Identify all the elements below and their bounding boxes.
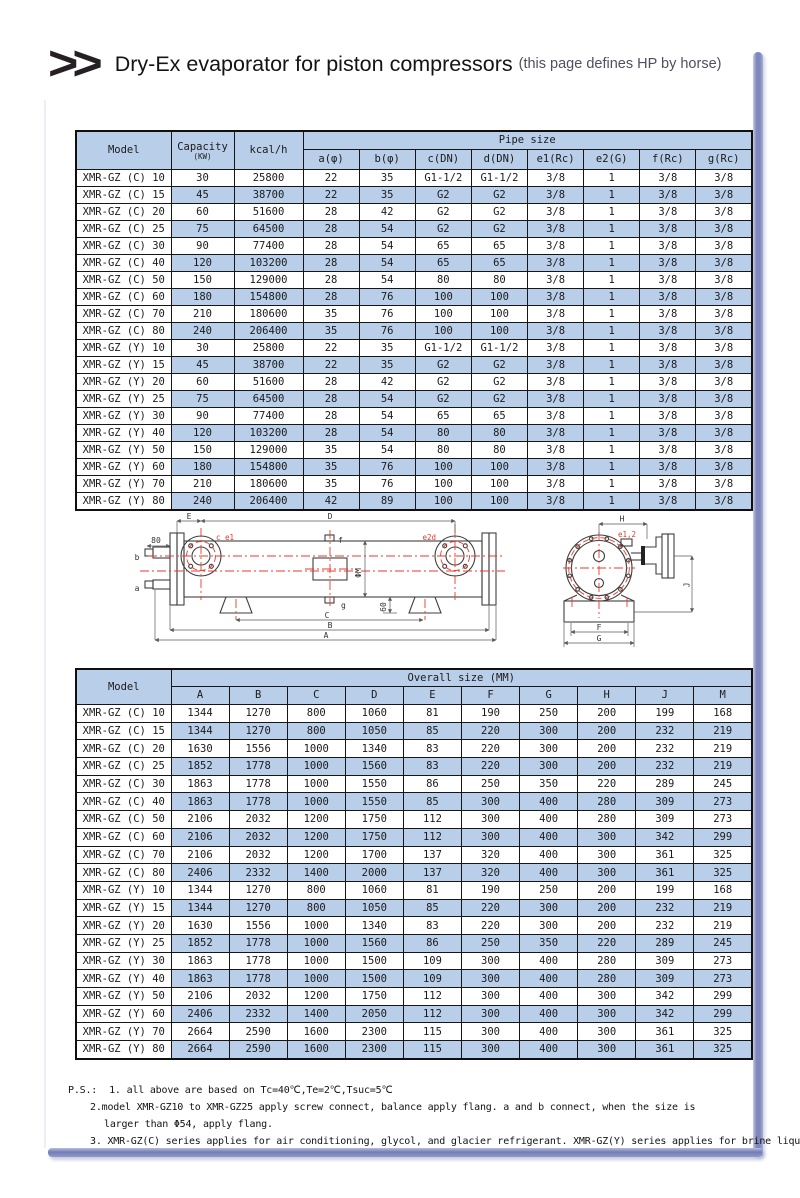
table-row: XMR-GZ (Y) 70266425901600230011530040030… — [76, 1023, 752, 1041]
value-cell: 3/8 — [640, 272, 696, 289]
page-border-right — [753, 52, 763, 1156]
value-cell: 1 — [584, 238, 640, 255]
value-cell: 1000 — [287, 775, 345, 793]
value-cell: 3/8 — [696, 476, 752, 493]
value-cell: 3/8 — [528, 408, 584, 425]
value-cell: 400 — [520, 1041, 578, 1059]
value-cell: 3/8 — [696, 272, 752, 289]
value-cell: 1500 — [345, 970, 403, 988]
table-row: XMR-GZ (Y) 30186317781000150010930040028… — [76, 952, 752, 970]
value-cell: 2106 — [171, 828, 229, 846]
value-cell: 3/8 — [528, 221, 584, 238]
value-cell: 342 — [636, 988, 694, 1006]
value-cell: 3/8 — [528, 493, 584, 511]
nozzle-label-e2d: e2d — [422, 533, 436, 542]
value-cell: 42 — [359, 374, 415, 391]
value-cell: 1400 — [287, 864, 345, 882]
value-cell: 2406 — [171, 1005, 229, 1023]
value-cell: 300 — [461, 1005, 519, 1023]
value-cell: 150 — [171, 442, 234, 459]
model-cell: XMR-GZ (C) 15 — [76, 722, 171, 740]
value-cell: 54 — [359, 255, 415, 272]
value-cell: 1 — [584, 459, 640, 476]
value-cell: 206400 — [234, 323, 303, 340]
value-cell: 219 — [694, 758, 752, 776]
value-cell: 30 — [171, 170, 234, 187]
dim-label-g: G — [597, 634, 602, 643]
value-cell: 100 — [471, 289, 527, 306]
dim-label-b-dim: B — [328, 621, 333, 630]
model-cell: XMR-GZ (Y) 20 — [76, 374, 171, 391]
value-cell: 1000 — [287, 793, 345, 811]
value-cell: 80 — [471, 442, 527, 459]
table-row: XMR-GZ (C) 8024020640035761001003/813/83… — [76, 323, 752, 340]
value-cell: 3/8 — [640, 459, 696, 476]
table-row: XMR-GZ (Y) 2575645002854G2G23/813/83/8 — [76, 391, 752, 408]
value-cell: 400 — [520, 846, 578, 864]
value-cell: 38700 — [234, 187, 303, 204]
value-cell: 3/8 — [640, 221, 696, 238]
value-cell: 1270 — [229, 722, 287, 740]
nozzle-label-e12: e1,2 — [618, 530, 636, 539]
value-cell: 361 — [636, 846, 694, 864]
model-cell: XMR-GZ (Y) 80 — [76, 1041, 171, 1059]
value-cell: 1863 — [171, 793, 229, 811]
value-cell: 28 — [303, 221, 359, 238]
value-cell: 28 — [303, 289, 359, 306]
value-cell: 77400 — [234, 408, 303, 425]
value-cell: 81 — [403, 705, 461, 723]
model-cell: XMR-GZ (Y) 60 — [76, 459, 171, 476]
value-cell: 232 — [636, 740, 694, 758]
value-cell: 1344 — [171, 705, 229, 723]
value-cell: 2332 — [229, 1005, 287, 1023]
value-cell: 300 — [578, 1005, 636, 1023]
value-cell: 109 — [403, 970, 461, 988]
value-cell: 76 — [359, 323, 415, 340]
model-cell: XMR-GZ (C) 40 — [76, 793, 171, 811]
pipe-size-table-head: Model Capacity (KW) kcal/h Pipe size a(φ… — [76, 131, 752, 170]
value-cell: 199 — [636, 881, 694, 899]
value-cell: 300 — [578, 1023, 636, 1041]
value-cell: 112 — [403, 1005, 461, 1023]
value-cell: 154800 — [234, 459, 303, 476]
value-cell: 2590 — [229, 1023, 287, 1041]
model-cell: XMR-GZ (Y) 70 — [76, 1023, 171, 1041]
value-cell: 1200 — [287, 811, 345, 829]
dim-label-80: 80 — [151, 536, 161, 545]
value-cell: 42 — [359, 204, 415, 221]
table-row: XMR-GZ (Y) 15134412708001050852203002002… — [76, 899, 752, 917]
model-cell: XMR-GZ (C) 40 — [76, 255, 171, 272]
ps-label: P.S.: — [68, 1085, 97, 1096]
nozzle-label-ce1: c e1 — [216, 533, 234, 542]
value-cell: 200 — [578, 899, 636, 917]
value-cell: 300 — [461, 1023, 519, 1041]
value-cell: 350 — [520, 775, 578, 793]
value-cell: 300 — [461, 828, 519, 846]
value-cell: 190 — [461, 705, 519, 723]
value-cell: 3/8 — [640, 408, 696, 425]
dim-label-60: 60 — [379, 602, 388, 612]
value-cell: 3/8 — [528, 391, 584, 408]
value-cell: 54 — [359, 272, 415, 289]
model-cell: XMR-GZ (C) 80 — [76, 864, 171, 882]
value-cell: 168 — [694, 705, 752, 723]
model-cell: XMR-GZ (Y) 80 — [76, 493, 171, 511]
value-cell: 1270 — [229, 705, 287, 723]
footnotes: P.S.:1. all above are based on Tc=40℃,Te… — [68, 1082, 800, 1150]
value-cell: 280 — [578, 970, 636, 988]
value-cell: 3/8 — [640, 476, 696, 493]
value-cell: 300 — [520, 722, 578, 740]
model-cell: XMR-GZ (C) 20 — [76, 204, 171, 221]
value-cell: 35 — [303, 323, 359, 340]
table-row: XMR-GZ (Y) 20163015561000134083220300200… — [76, 917, 752, 935]
value-cell: 120 — [171, 255, 234, 272]
value-cell: 83 — [403, 917, 461, 935]
model-cell: XMR-GZ (C) 15 — [76, 187, 171, 204]
value-cell: 1050 — [345, 899, 403, 917]
value-cell: 206400 — [234, 493, 303, 511]
value-cell: 129000 — [234, 272, 303, 289]
value-cell: 3/8 — [528, 357, 584, 374]
value-cell: 1344 — [171, 881, 229, 899]
value-cell: 3/8 — [640, 442, 696, 459]
value-cell: 2406 — [171, 864, 229, 882]
value-cell: 100 — [471, 493, 527, 511]
table-row: XMR-GZ (C) 50210620321200175011230040028… — [76, 811, 752, 829]
note-item-2: 2.model XMR-GZ10 to XMR-GZ25 apply screw… — [68, 1099, 800, 1116]
value-cell: 299 — [694, 828, 752, 846]
value-cell: 76 — [359, 289, 415, 306]
nozzle-label-b: b — [135, 553, 140, 562]
value-cell: 22 — [303, 187, 359, 204]
table-row: XMR-GZ (C) 15134412708001050852203002002… — [76, 722, 752, 740]
value-cell: 3/8 — [528, 374, 584, 391]
value-cell: 1863 — [171, 970, 229, 988]
value-cell: 2300 — [345, 1041, 403, 1059]
table-row: XMR-GZ (C) 60210620321200175011230040030… — [76, 828, 752, 846]
value-cell: 1 — [584, 170, 640, 187]
side-view-outline — [145, 533, 496, 613]
value-cell: 250 — [520, 881, 578, 899]
table-row: XMR-GZ (C) 10134412708001060811902502001… — [76, 705, 752, 723]
value-cell: 400 — [520, 952, 578, 970]
value-cell: 1778 — [229, 970, 287, 988]
nozzle-label-g: g — [341, 601, 346, 610]
value-cell: 1200 — [287, 828, 345, 846]
value-cell: 1000 — [287, 758, 345, 776]
value-cell: 1778 — [229, 793, 287, 811]
value-cell: 1344 — [171, 722, 229, 740]
size-col-header: B — [229, 687, 287, 705]
value-cell: 100 — [415, 323, 471, 340]
value-cell: 1060 — [345, 881, 403, 899]
value-cell: 1500 — [345, 952, 403, 970]
value-cell: 1700 — [345, 846, 403, 864]
value-cell: 1852 — [171, 934, 229, 952]
value-cell: 3/8 — [696, 221, 752, 238]
value-cell: G1-1/2 — [415, 170, 471, 187]
value-cell: 273 — [694, 970, 752, 988]
value-cell: 2664 — [171, 1023, 229, 1041]
value-cell: 3/8 — [528, 340, 584, 357]
value-cell: 54 — [359, 238, 415, 255]
value-cell: 2590 — [229, 1041, 287, 1059]
value-cell: 112 — [403, 811, 461, 829]
value-cell: 1863 — [171, 952, 229, 970]
value-cell: G2 — [415, 221, 471, 238]
table-row: XMR-GZ (Y) 80266425901600230011530040030… — [76, 1041, 752, 1059]
value-cell: 300 — [461, 811, 519, 829]
pipe-size-table-body: XMR-GZ (C) 1030258002235G1-1/2G1-1/23/81… — [76, 170, 752, 511]
table-row: XMR-GZ (Y) 6018015480035761001003/813/83… — [76, 459, 752, 476]
model-cell: XMR-GZ (Y) 15 — [76, 899, 171, 917]
overall-size-table-head: Model Overall size (MM) ABCDEFGHJM — [76, 669, 752, 705]
value-cell: 400 — [520, 828, 578, 846]
value-cell: 35 — [303, 306, 359, 323]
value-cell: 1630 — [171, 740, 229, 758]
value-cell: G2 — [471, 221, 527, 238]
value-cell: 1 — [584, 187, 640, 204]
model-cell: XMR-GZ (C) 50 — [76, 272, 171, 289]
value-cell: 51600 — [234, 374, 303, 391]
table-row: XMR-GZ (C) 1030258002235G1-1/2G1-1/23/81… — [76, 170, 752, 187]
model-cell: XMR-GZ (Y) 30 — [76, 408, 171, 425]
value-cell: 2032 — [229, 846, 287, 864]
value-cell: 1750 — [345, 811, 403, 829]
value-cell: 220 — [578, 934, 636, 952]
value-cell: 28 — [303, 255, 359, 272]
value-cell: 300 — [578, 828, 636, 846]
value-cell: 35 — [359, 170, 415, 187]
value-cell: 1550 — [345, 793, 403, 811]
model-cell: XMR-GZ (C) 80 — [76, 323, 171, 340]
technical-drawing: E D c e1 f e2d 80 b a ΦM g 60 C B A — [130, 512, 710, 648]
value-cell: 30 — [171, 340, 234, 357]
value-cell: 250 — [461, 934, 519, 952]
value-cell: 300 — [578, 846, 636, 864]
value-cell: 76 — [359, 476, 415, 493]
value-cell: 1550 — [345, 775, 403, 793]
note-item-3: 3. XMR-GZ(C) series applies for air cond… — [68, 1133, 800, 1150]
value-cell: 76 — [359, 306, 415, 323]
value-cell: 35 — [359, 340, 415, 357]
model-cell: XMR-GZ (Y) 15 — [76, 357, 171, 374]
value-cell: 210 — [171, 306, 234, 323]
value-cell: 3/8 — [640, 391, 696, 408]
dim-label-phi-m: ΦM — [354, 568, 363, 578]
dim-label-j: J — [683, 583, 692, 588]
model-cell: XMR-GZ (C) 50 — [76, 811, 171, 829]
value-cell: 1778 — [229, 952, 287, 970]
value-cell: 28 — [303, 391, 359, 408]
value-cell: 80 — [471, 272, 527, 289]
pipe-col-header: a(φ) — [303, 150, 359, 170]
value-cell: 1778 — [229, 775, 287, 793]
value-cell: 137 — [403, 846, 461, 864]
value-cell: 289 — [636, 934, 694, 952]
value-cell: 3/8 — [640, 238, 696, 255]
value-cell: 38700 — [234, 357, 303, 374]
value-cell: 75 — [171, 391, 234, 408]
value-cell: 35 — [303, 442, 359, 459]
value-cell: 1270 — [229, 881, 287, 899]
model-cell: XMR-GZ (Y) 25 — [76, 934, 171, 952]
value-cell: 1270 — [229, 899, 287, 917]
pipe-col-header: c(DN) — [415, 150, 471, 170]
value-cell: 1 — [584, 306, 640, 323]
value-cell: 300 — [520, 740, 578, 758]
value-cell: 1340 — [345, 740, 403, 758]
value-cell: 28 — [303, 238, 359, 255]
value-cell: 309 — [636, 970, 694, 988]
value-cell: 65 — [471, 238, 527, 255]
overall-size-table-body: XMR-GZ (C) 10134412708001060811902502001… — [76, 705, 752, 1059]
pipe-col-header: e2(G) — [584, 150, 640, 170]
value-cell: 200 — [578, 881, 636, 899]
value-cell: 89 — [359, 493, 415, 511]
value-cell: 273 — [694, 952, 752, 970]
value-cell: 28 — [303, 204, 359, 221]
value-cell: G2 — [415, 391, 471, 408]
value-cell: 220 — [578, 775, 636, 793]
table-row: XMR-GZ (C) 30186317781000155086250350220… — [76, 775, 752, 793]
note-line: P.S.:1. all above are based on Tc=40℃,Te… — [68, 1082, 800, 1099]
value-cell: 54 — [359, 408, 415, 425]
value-cell: 86 — [403, 775, 461, 793]
value-cell: 3/8 — [528, 187, 584, 204]
value-cell: 400 — [520, 988, 578, 1006]
value-cell: 2000 — [345, 864, 403, 882]
value-cell: G2 — [471, 187, 527, 204]
value-cell: 800 — [287, 705, 345, 723]
value-cell: 1778 — [229, 934, 287, 952]
value-cell: 80 — [415, 425, 471, 442]
value-cell: 25800 — [234, 170, 303, 187]
value-cell: 2106 — [171, 988, 229, 1006]
value-cell: 232 — [636, 899, 694, 917]
pipe-size-table: Model Capacity (KW) kcal/h Pipe size a(φ… — [75, 130, 753, 511]
value-cell: 100 — [471, 306, 527, 323]
table-row: XMR-GZ (C) 50150129000285480803/813/83/8 — [76, 272, 752, 289]
table-row: XMR-GZ (Y) 7021018060035761001003/813/83… — [76, 476, 752, 493]
value-cell: 2050 — [345, 1005, 403, 1023]
value-cell: 86 — [403, 934, 461, 952]
value-cell: 54 — [359, 221, 415, 238]
overall-size-table: Model Overall size (MM) ABCDEFGHJM XMR-G… — [75, 668, 753, 1060]
value-cell: 81 — [403, 881, 461, 899]
value-cell: 320 — [461, 864, 519, 882]
end-view-centerlines — [563, 532, 635, 618]
value-cell: 1 — [584, 255, 640, 272]
value-cell: 232 — [636, 758, 694, 776]
value-cell: 3/8 — [696, 374, 752, 391]
table-row: XMR-GZ (Y) 40186317781000150010930040028… — [76, 970, 752, 988]
value-cell: 3/8 — [696, 306, 752, 323]
value-cell: 3/8 — [640, 170, 696, 187]
value-cell: 3/8 — [696, 170, 752, 187]
value-cell: 2664 — [171, 1041, 229, 1059]
value-cell: 400 — [520, 793, 578, 811]
model-cell: XMR-GZ (C) 60 — [76, 828, 171, 846]
value-cell: 180 — [171, 289, 234, 306]
value-cell: 1000 — [287, 934, 345, 952]
value-cell: 3/8 — [640, 425, 696, 442]
value-cell: 168 — [694, 881, 752, 899]
page-header: >> Dry-Ex evaporator for piston compress… — [48, 38, 721, 90]
value-cell: 45 — [171, 187, 234, 204]
value-cell: G1-1/2 — [471, 340, 527, 357]
value-cell: 180600 — [234, 476, 303, 493]
model-cell: XMR-GZ (Y) 50 — [76, 988, 171, 1006]
value-cell: 3/8 — [640, 255, 696, 272]
value-cell: 1050 — [345, 722, 403, 740]
value-cell: 112 — [403, 988, 461, 1006]
value-cell: 1000 — [287, 970, 345, 988]
model-cell: XMR-GZ (C) 25 — [76, 221, 171, 238]
table-row: XMR-GZ (Y) 60240623321400205011230040030… — [76, 1005, 752, 1023]
value-cell: G1-1/2 — [415, 340, 471, 357]
value-cell: 54 — [359, 425, 415, 442]
table-row: XMR-GZ (C) 80240623321400200013732040030… — [76, 864, 752, 882]
value-cell: 1 — [584, 476, 640, 493]
value-cell: 1400 — [287, 1005, 345, 1023]
value-cell: 300 — [461, 988, 519, 1006]
value-cell: 35 — [359, 187, 415, 204]
value-cell: 300 — [578, 1041, 636, 1059]
value-cell: 180600 — [234, 306, 303, 323]
pipe-col-header: b(φ) — [359, 150, 415, 170]
table-row: XMR-GZ (C) 20163015561000134083220300200… — [76, 740, 752, 758]
value-cell: 3/8 — [528, 425, 584, 442]
value-cell: 1 — [584, 408, 640, 425]
value-cell: 3/8 — [696, 323, 752, 340]
value-cell: G2 — [415, 374, 471, 391]
value-cell: 400 — [520, 970, 578, 988]
table-row: XMR-GZ (C) 25185217781000156083220300200… — [76, 758, 752, 776]
value-cell: 280 — [578, 952, 636, 970]
value-cell: 299 — [694, 988, 752, 1006]
value-cell: G2 — [471, 391, 527, 408]
size-col-header: C — [287, 687, 345, 705]
note-item-2-cont: larger than Φ54, apply flang. — [68, 1116, 800, 1133]
value-cell: 28 — [303, 408, 359, 425]
value-cell: 3/8 — [696, 391, 752, 408]
table-row: XMR-GZ (C) 1545387002235G2G23/813/83/8 — [76, 187, 752, 204]
value-cell: 3/8 — [696, 238, 752, 255]
value-cell: 2106 — [171, 811, 229, 829]
value-cell: 361 — [636, 1041, 694, 1059]
end-view-outline — [564, 534, 674, 622]
value-cell: 3/8 — [528, 459, 584, 476]
value-cell: 289 — [636, 775, 694, 793]
value-cell: 361 — [636, 864, 694, 882]
table-row: XMR-GZ (C) 6018015480028761001003/813/83… — [76, 289, 752, 306]
value-cell: 250 — [520, 705, 578, 723]
value-cell: 100 — [471, 476, 527, 493]
value-cell: 103200 — [234, 425, 303, 442]
value-cell: 219 — [694, 740, 752, 758]
value-cell: 220 — [461, 899, 519, 917]
value-cell: G2 — [415, 187, 471, 204]
value-cell: 200 — [578, 758, 636, 776]
value-cell: 1 — [584, 357, 640, 374]
model-cell: XMR-GZ (C) 30 — [76, 238, 171, 255]
value-cell: 115 — [403, 1023, 461, 1041]
value-cell: 35 — [303, 476, 359, 493]
